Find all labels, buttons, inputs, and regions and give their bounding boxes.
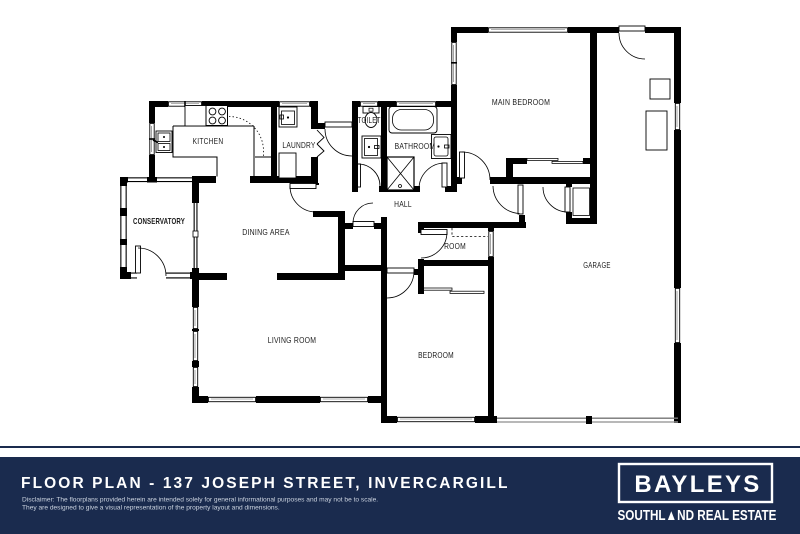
svg-text:BEDROOM: BEDROOM <box>418 350 454 360</box>
svg-text:Disclaimer: The floorplans pro: Disclaimer: The floorplans provided here… <box>22 497 378 504</box>
svg-text:KITCHEN: KITCHEN <box>193 136 224 146</box>
svg-text:CONSERVATORY: CONSERVATORY <box>133 216 185 226</box>
svg-text:They are designed to give a vi: They are designed to give a visual repre… <box>22 505 280 512</box>
svg-text:FLOOR PLAN - 137 JOSEPH STREET: FLOOR PLAN - 137 JOSEPH STREET, INVERCAR… <box>21 475 510 492</box>
svg-text:SOUTHL▲ND REAL ESTATE: SOUTHL▲ND REAL ESTATE <box>618 507 777 524</box>
svg-text:GARAGE: GARAGE <box>583 260 610 270</box>
svg-text:MAIN BEDROOM: MAIN BEDROOM <box>492 97 550 107</box>
svg-text:TOILET: TOILET <box>358 115 381 125</box>
svg-text:DINING AREA: DINING AREA <box>242 227 290 237</box>
svg-text:ROOM: ROOM <box>444 241 466 251</box>
svg-text:BATHROOM: BATHROOM <box>395 141 436 151</box>
svg-text:BAYLEYS: BAYLEYS <box>634 471 761 498</box>
svg-text:LAUNDRY: LAUNDRY <box>282 140 315 150</box>
svg-text:HALL: HALL <box>394 199 412 209</box>
svg-text:LIVING ROOM: LIVING ROOM <box>268 335 316 345</box>
